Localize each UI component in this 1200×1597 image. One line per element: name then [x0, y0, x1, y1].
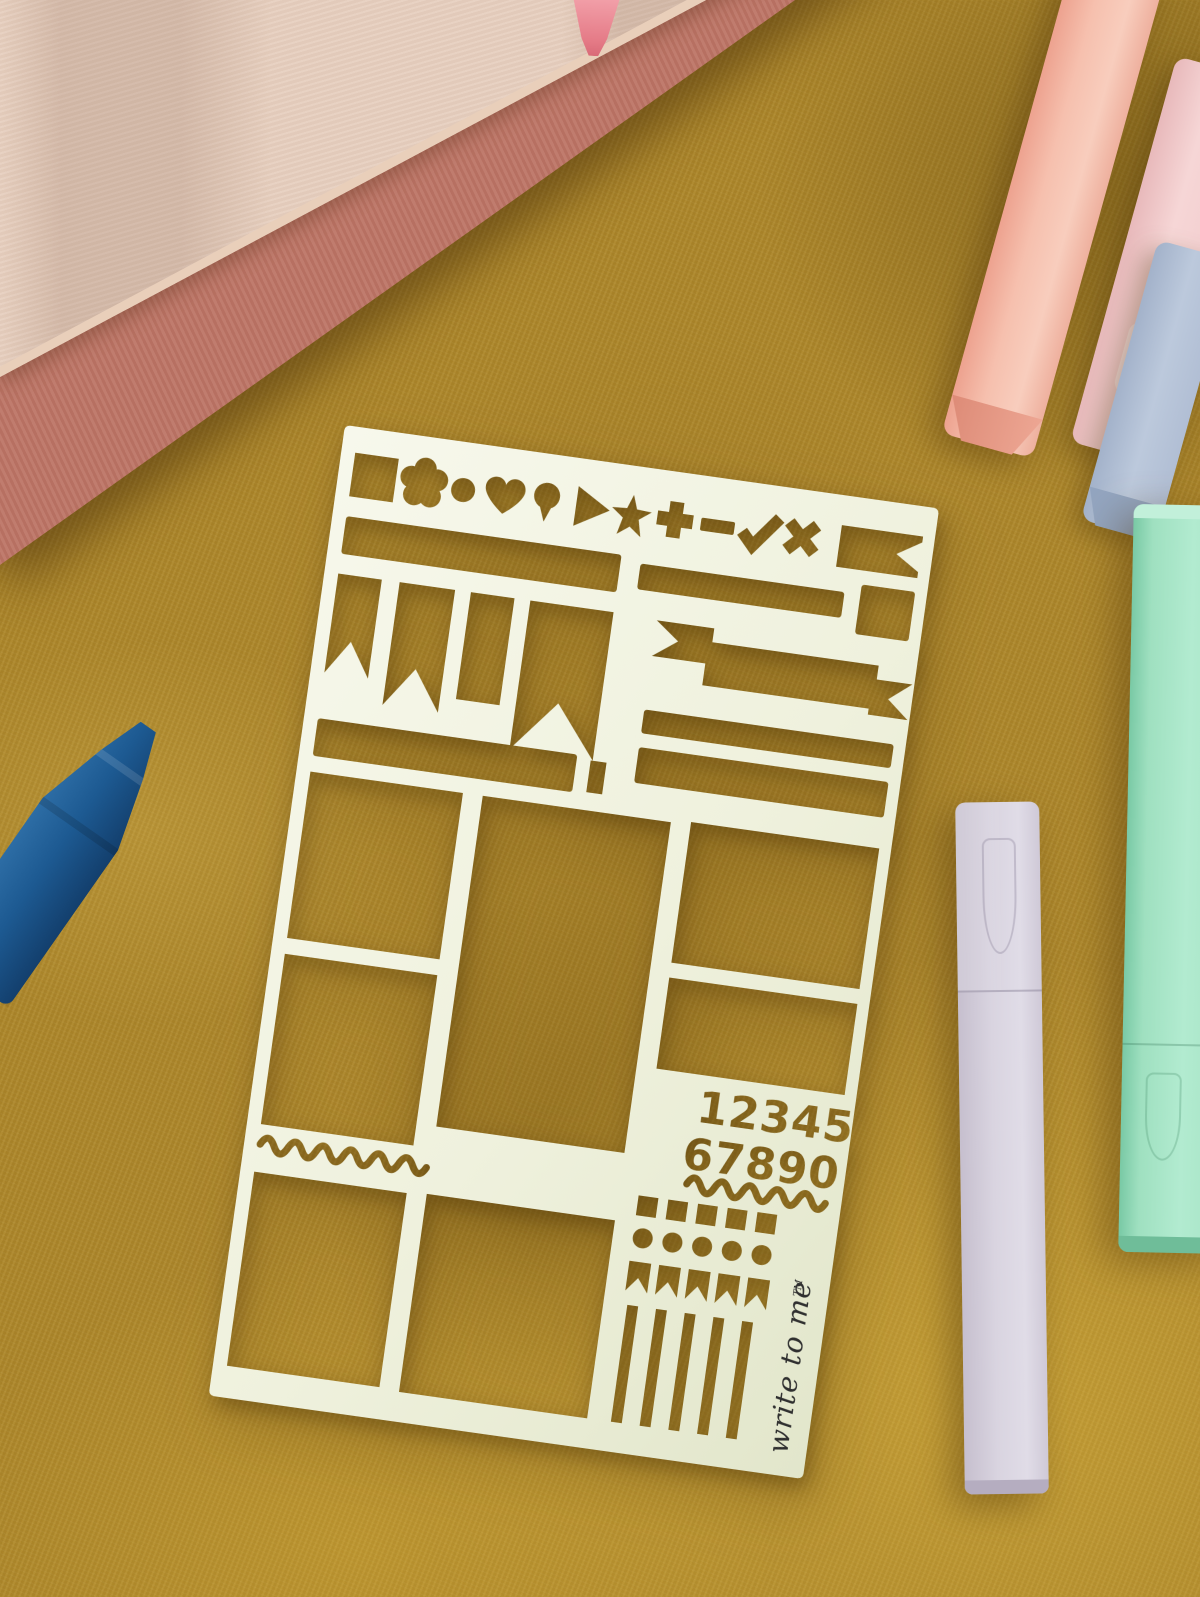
lavender-highlighter	[955, 801, 1049, 1494]
blue-crayon-pen	[0, 684, 197, 1007]
photo-scene: { "scene": { "type": "flat-lay photograp…	[0, 0, 1200, 1597]
chisel-tip-emboss	[1144, 1073, 1182, 1162]
journal-stencil-sheet: 12345 67890	[209, 425, 940, 1479]
pen-seam	[1123, 1042, 1200, 1046]
chisel-tip-emboss	[982, 838, 1018, 954]
mint-highlighter	[1118, 504, 1200, 1254]
pen-cap	[955, 801, 1042, 992]
